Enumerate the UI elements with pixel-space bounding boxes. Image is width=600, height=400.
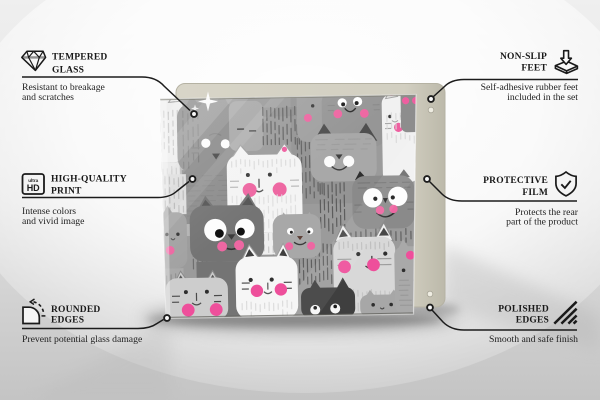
svg-text:Prevent potential glass damage: Prevent potential glass damage — [22, 334, 142, 345]
svg-text:Smooth and safe finish: Smooth and safe finish — [489, 334, 578, 345]
svg-text:PRINT: PRINT — [51, 187, 82, 197]
svg-text:ROUNDED: ROUNDED — [51, 305, 100, 315]
svg-text:included in the set: included in the set — [507, 92, 578, 103]
svg-text:HIGH-QUALITY: HIGH-QUALITY — [51, 175, 127, 185]
svg-text:POLISHED: POLISHED — [498, 304, 549, 314]
svg-text:part of the product: part of the product — [506, 216, 578, 227]
svg-text:PROTECTIVE: PROTECTIVE — [483, 176, 548, 186]
svg-text:TEMPERED: TEMPERED — [52, 52, 107, 62]
svg-text:FILM: FILM — [522, 188, 548, 198]
svg-text:NON-SLIP: NON-SLIP — [500, 52, 547, 62]
svg-text:EDGES: EDGES — [51, 316, 84, 326]
svg-text:EDGES: EDGES — [516, 316, 549, 326]
svg-text:FEET: FEET — [521, 64, 547, 74]
svg-text:and scratches: and scratches — [22, 92, 74, 103]
svg-text:and vivid image: and vivid image — [22, 216, 84, 227]
svg-text:GLASS: GLASS — [52, 66, 84, 76]
svg-text:HD: HD — [27, 183, 40, 193]
